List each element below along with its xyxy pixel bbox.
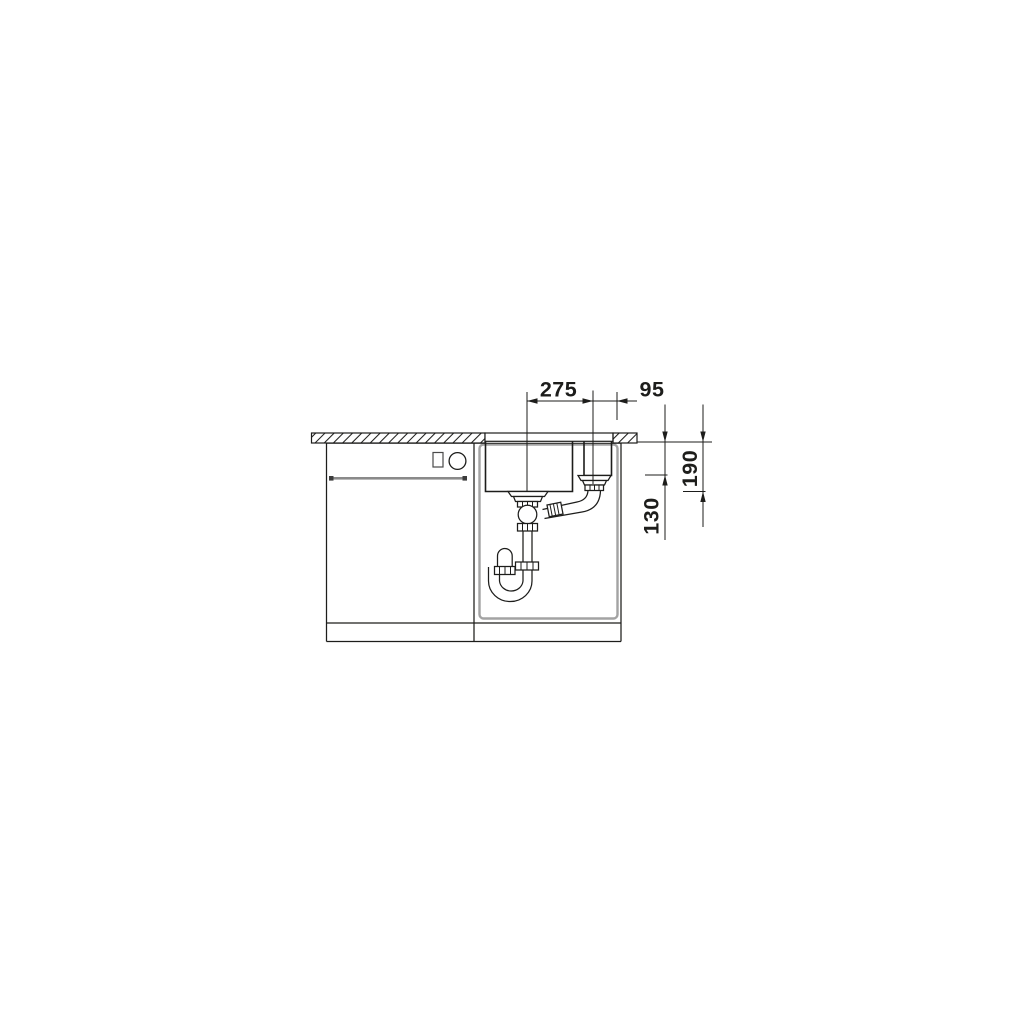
drain-flange — [508, 492, 548, 497]
drawing-canvas: 275 95 190 130 — [0, 0, 1024, 1024]
control-square-icon — [433, 453, 443, 468]
worktop-right-section — [613, 433, 637, 443]
main-bowl — [486, 441, 573, 491]
drain-body — [583, 481, 607, 486]
dimension-label-275: 275 — [540, 378, 577, 402]
sink-cabinet-carcass — [480, 445, 618, 619]
ball-joint — [518, 505, 537, 524]
worktop-left-section — [312, 433, 486, 443]
small-bowl-drain — [543, 476, 612, 519]
trap-inlet-dome — [498, 548, 513, 567]
cabinet-interior-box — [480, 445, 618, 619]
countertop — [312, 433, 638, 443]
dimension-label-95: 95 — [640, 378, 665, 402]
door-seam-right-cap — [463, 476, 468, 481]
appliance-front — [329, 453, 467, 481]
arrowhead-190-top — [700, 432, 705, 443]
dimension-vertical: 190 130 — [637, 405, 712, 541]
door-seam-left-cap — [329, 476, 334, 481]
sink-rim-band — [485, 433, 613, 441]
sink-installation-diagram: 275 95 190 130 — [0, 0, 1024, 1024]
arrowhead-left — [527, 398, 538, 403]
arrowhead-130-top — [662, 432, 667, 443]
drain-flange — [578, 476, 611, 481]
arrowhead-right — [617, 398, 628, 403]
small-bowl — [584, 441, 612, 475]
control-knob-icon — [449, 453, 466, 470]
arrowhead-130-bottom — [662, 475, 667, 486]
p-trap — [489, 548, 533, 601]
arrowhead-190-bottom — [700, 492, 705, 503]
dimension-label-130: 130 — [640, 497, 664, 534]
cabinets — [327, 443, 622, 642]
door-seam-bar — [329, 477, 467, 480]
drain-body — [514, 497, 543, 502]
arrowhead-middle — [583, 398, 594, 403]
dimension-label-190: 190 — [678, 450, 702, 487]
main-bowl-drain — [508, 492, 548, 571]
pipe-union-coupler — [547, 502, 563, 516]
